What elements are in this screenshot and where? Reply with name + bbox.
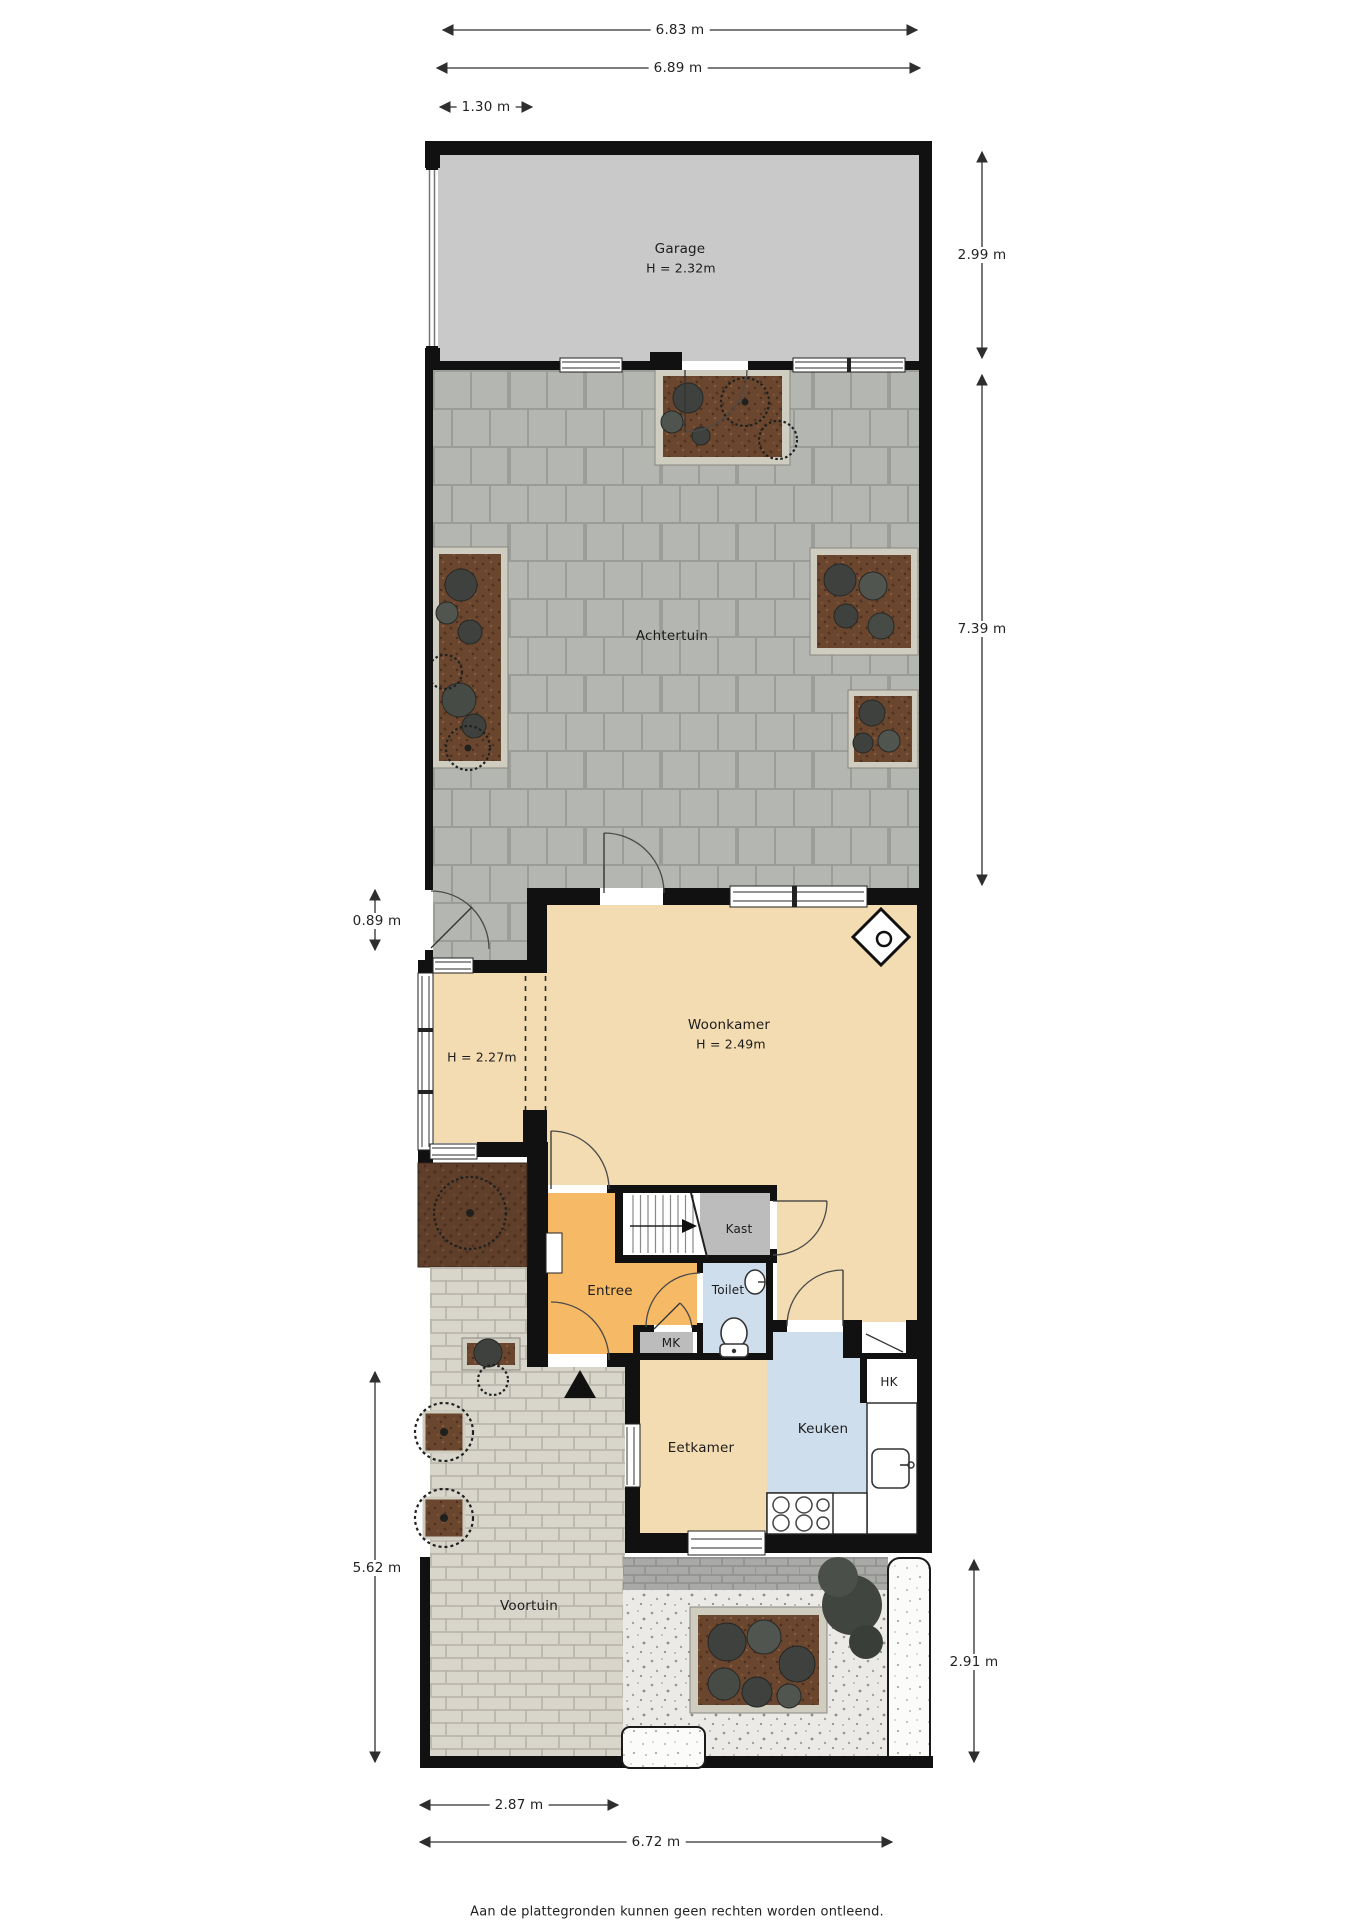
window [793, 358, 905, 372]
achtertuin-area [428, 368, 919, 963]
staircase [623, 1193, 707, 1257]
disclaimer-text: Aan de plattegronden kunnen geen rechten… [470, 1905, 884, 1920]
planter [810, 548, 918, 655]
dim-garage-depth: 2.99 m [953, 247, 1012, 263]
garage-height: H = 2.32m [646, 261, 716, 276]
planter [418, 1163, 527, 1267]
meter-niche [546, 1233, 562, 1273]
planter [690, 1607, 827, 1713]
planter [415, 1403, 473, 1461]
hk-label: HK [880, 1375, 897, 1389]
toilet-label: Toilet [712, 1283, 745, 1297]
garage-door [426, 166, 438, 350]
window [418, 973, 433, 1150]
eetkamer-label: Eetkamer [668, 1440, 735, 1456]
dim-side-gate: 0.89 m [348, 913, 407, 929]
window [430, 1144, 477, 1159]
toilet-icon [720, 1318, 748, 1357]
dim-voortuin-right: 2.91 m [945, 1654, 1004, 1670]
hedge-strip [888, 1558, 930, 1767]
dim-achtertuin-depth: 7.39 m [953, 621, 1012, 637]
dim-top-left: 1.30 m [457, 99, 516, 115]
dim-total-width: 6.72 m [627, 1834, 686, 1850]
door-arc [862, 1332, 906, 1353]
dim-top-inner: 6.89 m [649, 60, 708, 76]
voortuin-label: Voortuin [500, 1598, 558, 1614]
woonkamer-label: Woonkamer [688, 1017, 770, 1033]
doormat [622, 1727, 705, 1768]
planter [848, 690, 918, 768]
dim-voortuin-left: 5.62 m [348, 1560, 407, 1576]
window [688, 1531, 765, 1555]
sink-icon [872, 1449, 914, 1488]
dim-top-outer: 6.83 m [651, 22, 710, 38]
floorplan-page: 6.83 m 6.89 m 1.30 m 2.99 m 7.39 m 0.89 … [0, 0, 1358, 1920]
garage-label: Garage [655, 241, 706, 257]
floorplan-drawing [0, 0, 1358, 1920]
planter [428, 547, 508, 770]
window [433, 958, 473, 973]
window [560, 358, 622, 372]
uitbouw-height: H = 2.27m [447, 1050, 517, 1065]
garage-floor [438, 155, 919, 361]
stove-icon [767, 1493, 833, 1534]
kast-label: Kast [726, 1222, 753, 1236]
dim-voortuin-width: 2.87 m [490, 1797, 549, 1813]
washbasin-icon [745, 1270, 765, 1294]
woonkamer-height: H = 2.49m [696, 1037, 766, 1052]
keuken-label: Keuken [798, 1421, 848, 1437]
window [730, 886, 867, 907]
entree-label: Entree [587, 1283, 632, 1299]
achtertuin-label: Achtertuin [636, 628, 708, 644]
planter [415, 1489, 473, 1547]
mk-label: MK [662, 1336, 681, 1350]
